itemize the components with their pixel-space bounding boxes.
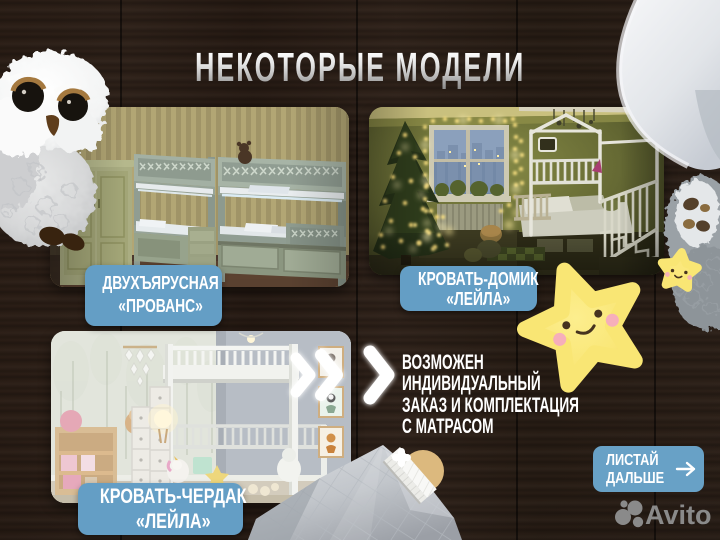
svg-text:Avito: Avito [645,500,712,530]
